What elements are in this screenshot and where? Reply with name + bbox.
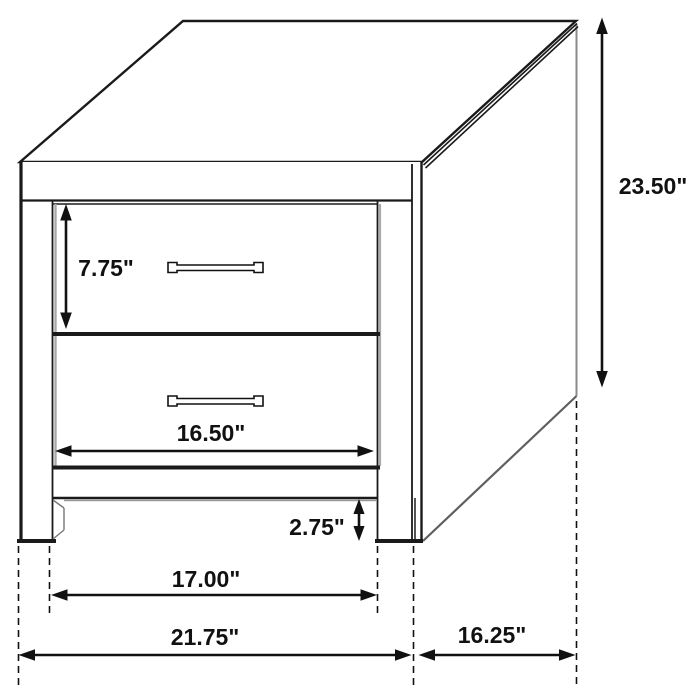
arrowhead-up-icon xyxy=(596,18,608,35)
arrowhead-right-icon xyxy=(395,649,412,661)
diagram-canvas: 7.75" 16.50" 2.75" 17.00" 21.75" 16.25" … xyxy=(0,0,700,700)
arrowhead-left-icon xyxy=(19,649,36,661)
overall-width-label: 21.75" xyxy=(171,624,239,650)
overall-height-dimension: 23.50" xyxy=(596,18,687,388)
overall-height-label: 23.50" xyxy=(619,173,687,199)
arrowhead-right-icon xyxy=(559,649,576,661)
inner-width-dimension: 17.00" xyxy=(51,566,377,601)
front-panel xyxy=(20,162,422,542)
leg-height-label: 2.75" xyxy=(289,514,345,540)
drawer-width-label: 16.50" xyxy=(177,420,245,446)
depth-dimension: 16.25" xyxy=(419,622,576,661)
front-face xyxy=(17,162,423,542)
arrowhead-right-icon xyxy=(361,589,378,601)
drawer-height-label: 7.75" xyxy=(78,255,134,281)
nightstand-dimension-diagram: 7.75" 16.50" 2.75" 17.00" 21.75" 16.25" … xyxy=(0,0,700,700)
arrowhead-left-icon xyxy=(419,649,436,661)
inner-width-label: 17.00" xyxy=(172,566,240,592)
arrowhead-down-icon xyxy=(596,371,608,388)
depth-label: 16.25" xyxy=(458,622,526,648)
arrowhead-left-icon xyxy=(51,589,68,601)
overall-width-dimension: 21.75" xyxy=(19,624,412,661)
